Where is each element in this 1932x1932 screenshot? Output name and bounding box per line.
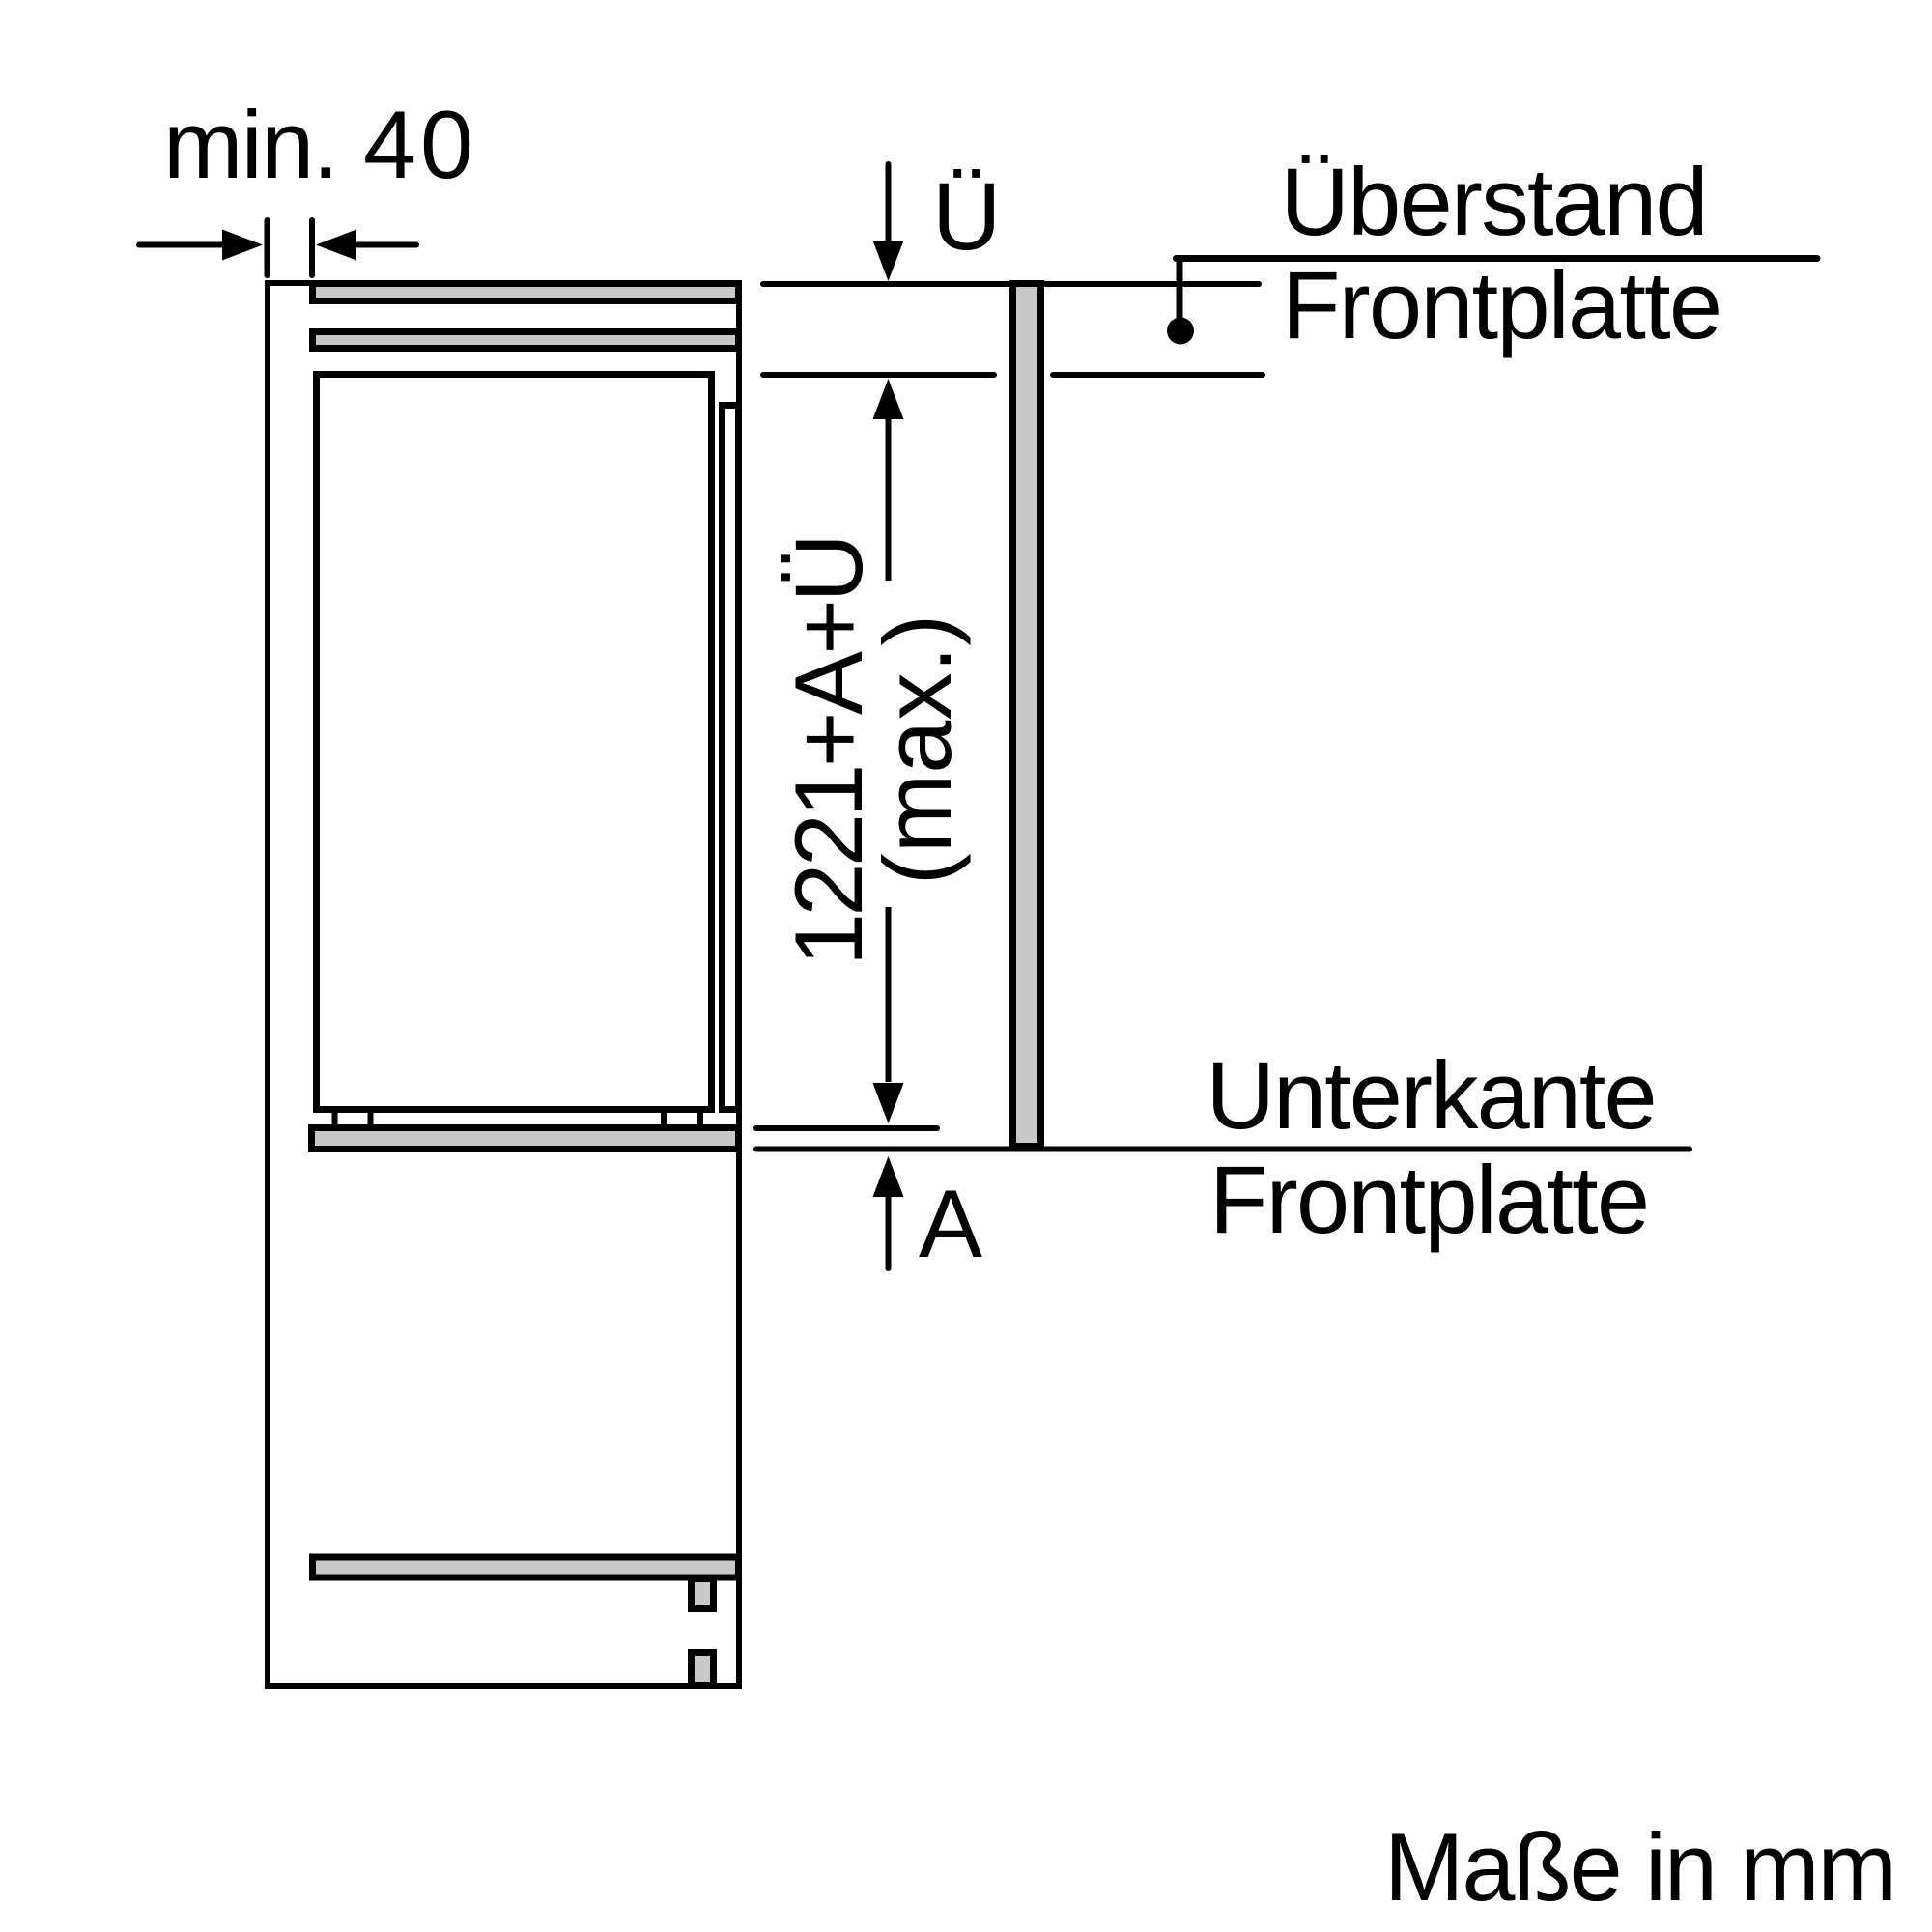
- svg-text:Frontplatte: Frontplatte: [1282, 251, 1722, 358]
- svg-text:Frontplatte: Frontplatte: [1209, 1146, 1650, 1253]
- svg-text:(max.): (max.): [864, 614, 971, 885]
- svg-text:Ü: Ü: [932, 162, 1002, 270]
- svg-text:Unterkante: Unterkante: [1207, 1041, 1658, 1149]
- svg-text:A: A: [919, 1170, 982, 1277]
- svg-text:Maße in mm: Maße in mm: [1384, 1813, 1897, 1920]
- svg-text:min.: min.: [163, 91, 339, 198]
- svg-text:Überstand: Überstand: [1281, 148, 1709, 255]
